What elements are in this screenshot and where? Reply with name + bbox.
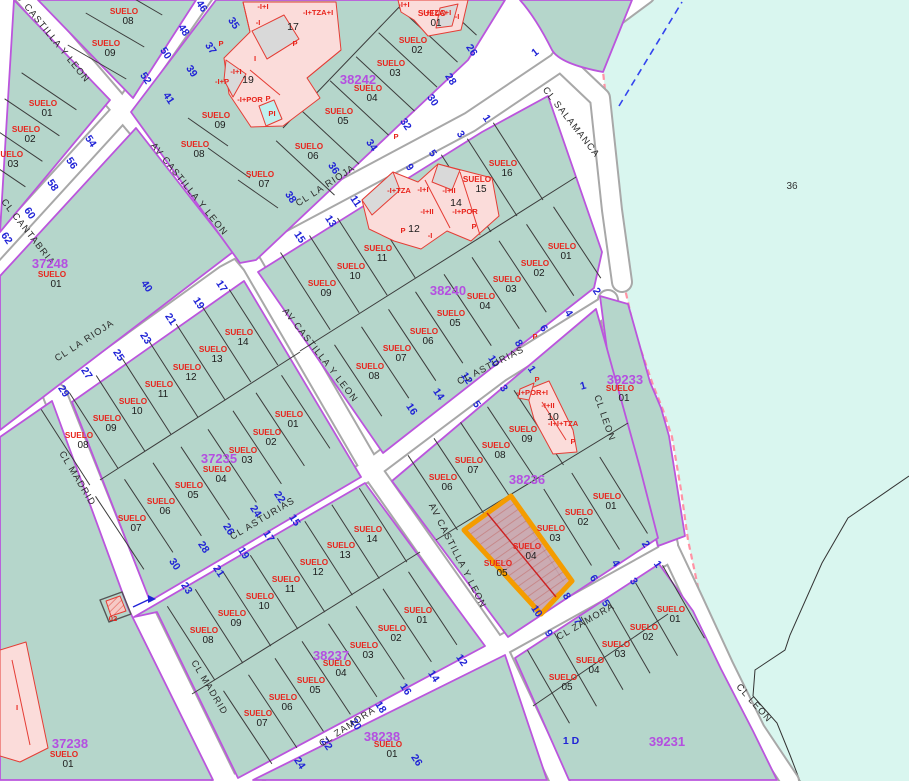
parcel-number: 05	[449, 318, 461, 329]
building-storey-label: 02	[109, 614, 117, 623]
parcel-number: 05	[309, 685, 321, 696]
parcel-number: 02	[265, 437, 277, 448]
parcel-suelo-label: SUELO	[489, 159, 518, 168]
parcel-number: 02	[390, 633, 402, 644]
parcel-number: 04	[215, 474, 227, 485]
parcel-number: 07	[395, 353, 407, 364]
parcel-suelo-label: SUELO	[350, 641, 379, 650]
parcel-number: 04	[366, 93, 378, 104]
parcel-suelo-label: SUELO	[218, 609, 247, 618]
parcel-number: 03	[362, 650, 374, 661]
parcel-number: 05	[337, 116, 349, 127]
parcel-number: 06	[281, 702, 293, 713]
parcel-number: 06	[441, 482, 453, 493]
parcel-number: 11	[285, 584, 296, 595]
parcel-number: 06	[422, 336, 434, 347]
parcel-suelo-label: SUELO	[593, 492, 622, 501]
building-storey-label: PI	[268, 109, 275, 118]
building-storey-label: -I+I+TZA	[548, 419, 579, 428]
parcel-number: 01	[41, 108, 53, 119]
parcel-suelo-label: SUELO	[657, 605, 686, 614]
building-storey-label: P	[218, 39, 223, 48]
parcel-suelo-label: SUELO	[65, 431, 94, 440]
parcel-number: 08	[193, 149, 205, 160]
building-storey-label: -I	[455, 12, 460, 21]
parcel-number: 13	[211, 354, 223, 365]
parcel-suelo-label: SUELO	[602, 640, 631, 649]
block-id-label: 37248	[32, 256, 68, 271]
building-storey-label: -I+TZA+I	[421, 8, 451, 17]
block-id-label: 37235	[201, 451, 237, 466]
block-id-label: 38236	[509, 472, 545, 487]
parcel-suelo-label: SUELO	[272, 575, 301, 584]
building-storey-label: -I+II	[442, 186, 455, 195]
parcel-number: 04	[525, 551, 537, 562]
building-storey-label: P	[570, 437, 575, 446]
parcel-suelo-label: SUELO	[493, 275, 522, 284]
block-id-label: 38237	[313, 648, 349, 663]
parcel-suelo-label: SUELO	[404, 606, 433, 615]
building-storey-label: -I+I	[257, 2, 268, 11]
building-storey-label: I	[254, 54, 256, 63]
building-storey-label: -I+TZA	[387, 186, 411, 195]
parcel-suelo-label: SUELO	[202, 111, 231, 120]
parcel-number: 02	[533, 268, 545, 279]
building-storey-label: I	[16, 703, 18, 712]
parcel-suelo-label: SUELO	[92, 39, 121, 48]
parcel-number: 08	[202, 635, 214, 646]
parcel-suelo-label: SUELO	[173, 363, 202, 372]
parcel-number: 12	[312, 567, 324, 578]
parcel-suelo-label: SUELO	[269, 693, 298, 702]
parcel-suelo-label: SUELO	[93, 414, 122, 423]
parcel-number: 03	[505, 284, 517, 295]
building-storey-label: -I+TZA+I	[303, 8, 333, 17]
parcel-suelo-label: SUELO	[410, 327, 439, 336]
building-storey-label: -I+POR	[237, 95, 263, 104]
block-id-label: 38240	[430, 283, 466, 298]
parcel-number: 15	[475, 184, 487, 195]
parcel-suelo-label: SUELO	[50, 750, 79, 759]
parcel-suelo-label: SUELO	[455, 456, 484, 465]
parcel-number: 07	[467, 465, 479, 476]
parcel-number: 05	[561, 682, 573, 693]
parcel-number: 06	[307, 151, 319, 162]
building-storey-label: -I+POR+I	[516, 388, 548, 397]
parcel-number: 10	[131, 406, 143, 417]
parcel-suelo-label: SUELO	[537, 524, 566, 533]
street-number: 1	[529, 46, 541, 59]
parcel-number: 01	[50, 279, 62, 290]
parcel-number: 09	[320, 288, 332, 299]
parcel-suelo-label: SUELO	[548, 242, 577, 251]
parcel-suelo-label: SUELO	[244, 709, 273, 718]
parcel-suelo-label: SUELO	[356, 362, 385, 371]
parcel-number: 03	[614, 649, 626, 660]
parcel-suelo-label: SUELO	[364, 244, 393, 253]
parcel-number: 08	[494, 450, 506, 461]
parcel-number: 03	[549, 533, 561, 544]
parcel-suelo-label: SUELO	[354, 525, 383, 534]
parcel-suelo-label: SUELO	[246, 170, 275, 179]
parcel-suelo-label: SUELO	[38, 270, 67, 279]
parcel-number: 05	[187, 490, 199, 501]
parcel-suelo-label: SUELO	[513, 542, 542, 551]
parcel-number: 04	[479, 301, 491, 312]
parcel-suelo-label: SUELO	[110, 7, 139, 16]
parcel-number: 09	[521, 434, 533, 445]
block-id-label: 39231	[649, 734, 685, 749]
parcel-number: 02	[642, 632, 654, 643]
parcel-suelo-label: SUELO	[119, 397, 148, 406]
water-label: 36	[786, 181, 798, 192]
parcel-suelo-label: SUELO	[225, 328, 254, 337]
parcel-number: 11	[377, 253, 388, 264]
cadastral-map-stage: SUELO01SUELO02SUELO03SUELO08SUELO09SUELO…	[0, 0, 909, 781]
parcel-suelo-label: SUELO	[399, 36, 428, 45]
parcel-suelo-label: SUELO	[565, 508, 594, 517]
building-storey-label: P	[534, 375, 539, 384]
parcel-number: 01	[669, 614, 681, 625]
parcel-suelo-label: SUELO	[246, 592, 275, 601]
parcel-suelo-label: SUELO	[378, 624, 407, 633]
parcel-suelo-label: SUELO	[12, 125, 41, 134]
parcel-suelo-label: SUELO	[295, 142, 324, 151]
building-parcel-number: 17	[287, 21, 299, 33]
building-storey-label: P	[393, 132, 398, 141]
parcel-number: 01	[416, 615, 428, 626]
parcel-suelo-label: SUELO	[297, 676, 326, 685]
block-id-label: 39233	[607, 372, 643, 387]
building-storey-label: -I+I	[398, 0, 409, 9]
building-storey-label: -I+POR	[452, 207, 478, 216]
building-parcel-number: 12	[408, 223, 420, 235]
parcel-number: 04	[588, 665, 600, 676]
building-storey-label: P	[400, 226, 405, 235]
parcel-suelo-label: SUELO	[175, 481, 204, 490]
parcel-number: 06	[159, 506, 171, 517]
parcel-number: 02	[577, 517, 589, 528]
building-storey-label: -I+II	[420, 207, 433, 216]
building-storey-label: P	[532, 332, 537, 341]
parcel-number: 14	[237, 337, 249, 348]
parcel-number: 01	[560, 251, 572, 262]
parcel-suelo-label: SUELO	[29, 99, 58, 108]
parcel-number: 03	[241, 455, 253, 466]
parcel-number: 14	[366, 534, 378, 545]
parcel-suelo-label: SUELO	[253, 428, 282, 437]
parcel-number: 02	[24, 134, 36, 145]
building-storey-label: P	[292, 39, 297, 48]
parcel-number: 07	[258, 179, 270, 190]
parcel-number: 10	[258, 601, 270, 612]
parcel-number: 02	[411, 45, 423, 56]
parcel-suelo-label: SUELO	[484, 559, 513, 568]
parcel-suelo-label: SUELO	[482, 441, 511, 450]
parcel-number: 13	[339, 550, 351, 561]
parcel-number: 09	[104, 48, 116, 59]
parcel-suelo-label: SUELO	[437, 309, 466, 318]
parcel-suelo-label: SUELO	[190, 626, 219, 635]
map-canvas[interactable]: SUELO01SUELO02SUELO03SUELO08SUELO09SUELO…	[0, 0, 909, 781]
parcel-number: 08	[122, 16, 134, 27]
building-storey-label: -I+II	[541, 401, 554, 410]
parcel-number: 09	[105, 423, 117, 434]
parcel-suelo-label: SUELO	[630, 623, 659, 632]
building-storey-label: P	[265, 94, 270, 103]
parcel-suelo-label: SUELO	[145, 380, 174, 389]
parcel-suelo-label: SUELO	[509, 425, 538, 434]
parcel-number: 04	[335, 668, 347, 679]
building-storey-label: -I+I	[230, 67, 241, 76]
parcel-suelo-label: SUELO	[325, 107, 354, 116]
parcel-suelo-label: SUELO	[337, 262, 366, 271]
building-storey-label: P	[471, 222, 476, 231]
parcel-number: 01	[287, 419, 299, 430]
parcel-suelo-label: SUELO	[377, 59, 406, 68]
block-id-label: 38242	[340, 72, 376, 87]
parcel-number: 12	[185, 372, 197, 383]
parcel-number: 10	[349, 271, 361, 282]
parcel-number: 11	[158, 389, 169, 400]
parcel-number: 01	[618, 393, 630, 404]
street-number: 1 D	[563, 735, 580, 747]
parcel-number: 09	[230, 618, 242, 629]
parcel-number: 08	[77, 440, 89, 451]
parcel-number: 01	[430, 18, 442, 29]
parcel-number: 08	[368, 371, 380, 382]
street-number: 21	[162, 311, 179, 328]
parcel-number: 05	[496, 568, 508, 579]
parcel-suelo-label: SUELO	[549, 673, 578, 682]
parcel-number: 03	[7, 159, 19, 170]
parcel-suelo-label: SUELO	[203, 465, 232, 474]
building-storey-label: -I+P	[215, 77, 229, 86]
parcel-suelo-label: SUELO	[0, 150, 24, 159]
block-id-label: 37238	[52, 736, 88, 751]
parcel-suelo-label: SUELO	[118, 514, 147, 523]
parcel-number: 01	[605, 501, 617, 512]
parcel-number: 16	[501, 168, 513, 179]
parcel-suelo-label: SUELO	[275, 410, 304, 419]
parcel-suelo-label: SUELO	[429, 473, 458, 482]
parcel-suelo-label: SUELO	[308, 279, 337, 288]
parcel-suelo-label: SUELO	[521, 259, 550, 268]
parcel-number: 03	[389, 68, 401, 79]
parcel-number: 01	[62, 759, 74, 770]
parcel-suelo-label: SUELO	[300, 558, 329, 567]
building-storey-label: -I	[256, 18, 261, 27]
parcel-number: 01	[386, 749, 398, 760]
block-id-label: 38238	[364, 729, 400, 744]
parcel-number: 09	[214, 120, 226, 131]
parcel-suelo-label: SUELO	[199, 345, 228, 354]
parcel-suelo-label: SUELO	[467, 292, 496, 301]
parcel-suelo-label: SUELO	[181, 140, 210, 149]
parcel-suelo-label: SUELO	[327, 541, 356, 550]
building-storey-label: -I	[428, 231, 433, 240]
parcel-suelo-label: SUELO	[463, 175, 492, 184]
parcel-suelo-label: SUELO	[147, 497, 176, 506]
building-parcel-number: 19	[242, 74, 254, 86]
parcel-suelo-label: SUELO	[383, 344, 412, 353]
parcel-suelo-label: SUELO	[576, 656, 605, 665]
parcel-number: 07	[256, 718, 268, 729]
building-storey-label: -I+I	[417, 185, 428, 194]
parcel-number: 07	[130, 523, 142, 534]
water-area-label: 36	[786, 181, 798, 192]
